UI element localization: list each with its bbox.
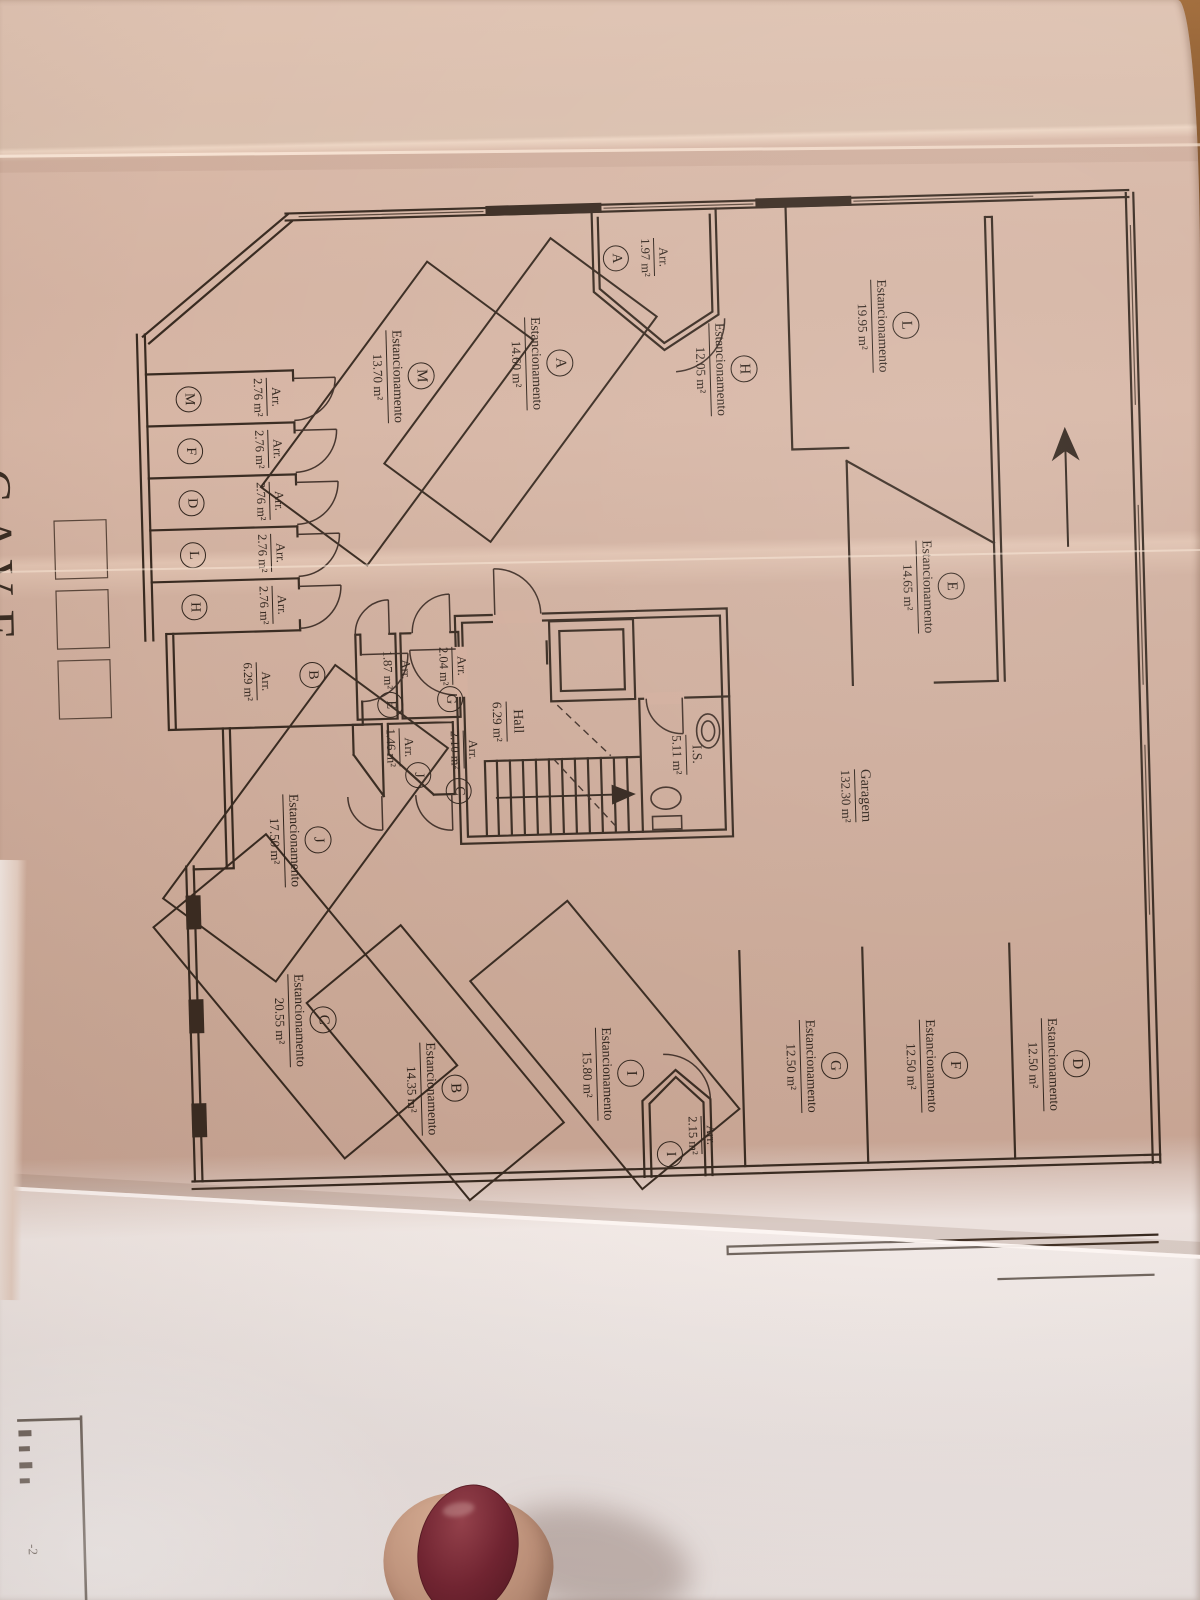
parking-space-label: EEstancionamento14.65 m² <box>898 539 966 634</box>
toilet-icon <box>651 787 682 830</box>
storage-label-text: Arr. <box>269 481 287 520</box>
parking-area: 12.50 m² <box>902 1020 921 1113</box>
parking-label-text: Estancionamento <box>385 330 406 423</box>
circled-letter: C <box>309 1006 337 1034</box>
hall-label: Hall 6.29 m² <box>489 701 527 742</box>
garage-name: Garagem <box>854 769 876 823</box>
storage-label-text: Arr. <box>266 377 284 416</box>
circled-letter: M <box>407 362 435 390</box>
circled-letter: D <box>1063 1050 1091 1078</box>
wc-name: I.S. <box>685 734 705 774</box>
storage-area: 2.04 m² <box>435 647 452 686</box>
parking-area: 12.05 m² <box>691 323 710 416</box>
hall-name: Hall <box>506 701 527 742</box>
parking-area: 17.50 m² <box>265 794 284 887</box>
storage-label-text: Arr. <box>452 646 470 685</box>
parking-label-text: Estancionamento <box>799 1020 820 1113</box>
parking-space-label: MEstancionamento13.70 m² <box>368 329 436 424</box>
parking-space-label: BEstancionamento14.35 m² <box>402 1041 470 1136</box>
storage-label-text: Arr. <box>256 662 274 701</box>
storage-area: 2.15 m² <box>684 1116 701 1155</box>
circled-letter: I <box>617 1059 645 1087</box>
storage-area: 2.76 m² <box>252 482 269 521</box>
circled-letter: L <box>892 311 920 339</box>
parking-space-label: FEstancionamento12.50 m² <box>902 1018 970 1113</box>
nail-highlight <box>442 1500 476 1519</box>
parking-area: 12.50 m² <box>1024 1018 1043 1111</box>
parking-space-label: HEstancionamento12.05 m² <box>691 322 759 417</box>
plan-rotated-container: Garagem 132.30 m² Hall 6.29 m² I.S. 5.11… <box>0 0 1200 1600</box>
storage-label-text: Arr. <box>268 429 286 468</box>
storage-area: 1.87 m² <box>379 650 396 689</box>
hall-area: 6.29 m² <box>489 702 506 742</box>
garage-label: Garagem 132.30 m² <box>837 769 876 823</box>
parking-label-text: Estancionamento <box>282 794 303 887</box>
circled-letter: B <box>441 1074 469 1102</box>
parking-label-text: Estancionamento <box>919 1019 940 1112</box>
parking-space-label: JEstancionamento17.50 m² <box>265 793 333 888</box>
storage-label: Arr.2.76 m² <box>249 377 283 416</box>
wc-area: 5.11 m² <box>668 735 685 775</box>
storage-label-text: Arr. <box>272 585 290 624</box>
parking-area: 14.60 m² <box>507 317 526 410</box>
parking-label-text: Estancionamento <box>524 317 545 410</box>
basement-floor-plan: Garagem 132.30 m² Hall 6.29 m² I.S. 5.11… <box>0 0 1200 1600</box>
parking-label-text: Estancionamento <box>595 1027 616 1120</box>
garage-area: 132.30 m² <box>837 769 855 823</box>
storage-label-text: Arr. <box>463 730 481 769</box>
circled-letter: F <box>941 1051 969 1079</box>
storage-label: Arr.2.10 m² <box>446 730 480 769</box>
parking-space-label: GEstancionamento12.50 m² <box>782 1019 850 1114</box>
storage-area: 2.76 m² <box>251 430 268 469</box>
parking-space-label: LEstancionamento19.95 m² <box>853 278 921 373</box>
storage-label-text: Arr. <box>653 238 671 277</box>
storage-label-text: Arr. <box>396 650 414 689</box>
parking-area: 13.70 m² <box>368 330 387 423</box>
circled-letter: A <box>546 349 574 377</box>
storage-label: Arr.1.97 m² <box>637 238 671 277</box>
storage-area: 2.76 m² <box>254 534 271 573</box>
floor-plan-linework <box>0 0 1200 1600</box>
storage-label: Arr.2.04 m² <box>435 646 469 685</box>
circled-letter: H <box>730 355 758 383</box>
parking-label-text: Estancionamento <box>419 1042 440 1135</box>
circled-letter: G <box>821 1052 849 1080</box>
parking-area: 12.50 m² <box>782 1020 801 1113</box>
parking-area: 20.55 m² <box>270 974 289 1067</box>
storage-area: 2.76 m² <box>255 586 272 625</box>
storage-label: Arr.2.76 m² <box>254 533 288 572</box>
storage-label-text: Arr. <box>399 728 417 767</box>
parking-space-label: IEstancionamento15.80 m² <box>578 1026 646 1121</box>
storage-label: Arr.1.46 m² <box>382 728 416 767</box>
circled-letter: J <box>304 826 332 854</box>
storage-area: 6.29 m² <box>239 662 256 701</box>
storage-label: Arr.6.29 m² <box>239 662 273 701</box>
storage-label: Arr.2.76 m² <box>255 585 289 624</box>
thumb <box>372 1466 672 1600</box>
parking-label-text: Estancionamento <box>916 540 937 633</box>
storage-area: 2.76 m² <box>249 378 266 417</box>
title-block-fragment: -2 <box>25 1544 41 1555</box>
storage-label-text: Arr. <box>270 533 288 572</box>
storage-label-text: Arr. <box>701 1116 719 1155</box>
photo-of-floor-plan: Garagem 132.30 m² Hall 6.29 m² I.S. 5.11… <box>0 0 1200 1600</box>
storage-area: 2.10 m² <box>446 731 463 770</box>
storage-label: Arr.2.76 m² <box>251 429 285 468</box>
wc-label: I.S. 5.11 m² <box>668 734 705 775</box>
storage-area: 1.46 m² <box>382 728 399 767</box>
storage-label: Arr.2.76 m² <box>252 481 286 520</box>
parking-space-label: AEstancionamento14.60 m² <box>507 316 575 411</box>
parking-label-text: Estancionamento <box>870 279 891 372</box>
parking-label-text: Estancionamento <box>287 974 308 1067</box>
storage-area: 1.97 m² <box>637 238 654 277</box>
parking-label-text: Estancionamento <box>708 323 729 416</box>
parking-area: 15.80 m² <box>578 1028 597 1121</box>
parking-area: 19.95 m² <box>853 280 872 373</box>
parking-label-text: Estancionamento <box>1041 1018 1062 1111</box>
storage-label: Arr.1.87 m² <box>379 650 413 689</box>
direction-arrow-icon <box>1051 426 1082 547</box>
circled-letter: E <box>937 572 965 600</box>
storage-label: Arr.2.15 m² <box>684 1116 718 1155</box>
parking-area: 14.65 m² <box>898 541 917 634</box>
parking-space-label: DEstancionamento12.50 m² <box>1024 1017 1092 1112</box>
parking-area: 14.35 m² <box>402 1043 421 1136</box>
parking-space-label: CEstancionamento20.55 m² <box>270 973 338 1068</box>
